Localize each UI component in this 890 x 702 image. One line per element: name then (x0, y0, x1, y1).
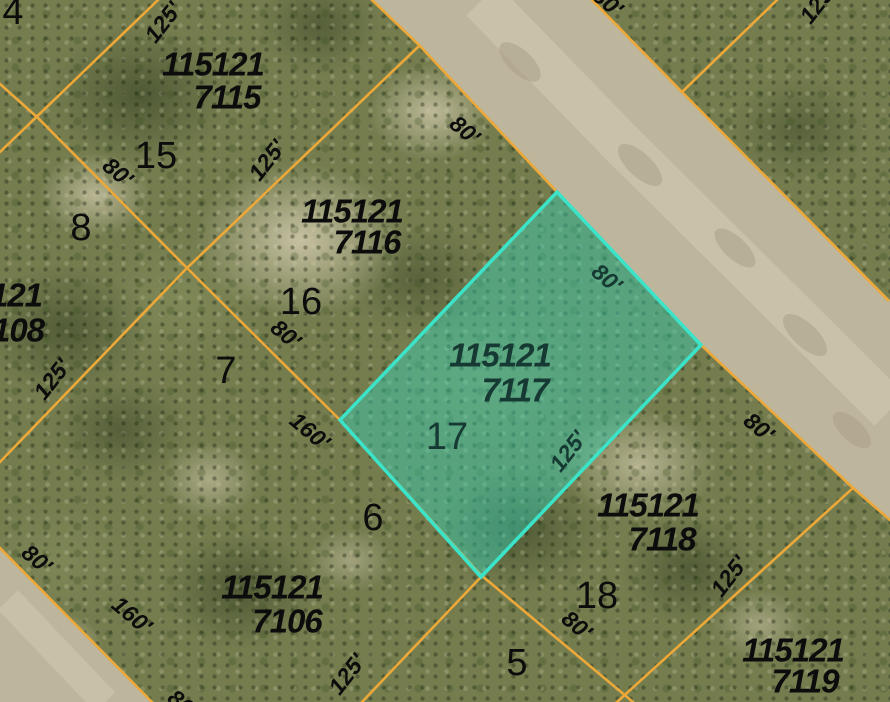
lot-number-label: 17 (426, 416, 468, 458)
dimension-label: 125' (28, 353, 76, 405)
parcel-id-label: 7116 (334, 224, 403, 261)
parcel-id-label: 115121 (162, 46, 264, 83)
lot-number-label: 7 (215, 350, 236, 392)
parcel-id-label: 7117 (482, 372, 552, 409)
dimension-label: 160' (285, 407, 336, 456)
dimension-label: 80' (98, 152, 140, 193)
parcel-id-label: 7119 (772, 663, 841, 700)
parcel-id-label: 115121 (449, 337, 551, 374)
dimension-label: 160' (107, 591, 158, 640)
lot-number-label: 15 (135, 135, 177, 177)
lot-number-label: 18 (576, 575, 618, 617)
plat-overlay: 4 125' 115121 7115 15 80' 125' 8 121 108… (0, 0, 890, 702)
dimension-label: 125' (243, 134, 291, 186)
dimension-label: 80' (445, 110, 487, 151)
lot-number-label: 4 (2, 0, 23, 33)
parcel-map: 4 125' 115121 7115 15 80' 125' 8 121 108… (0, 0, 890, 702)
parcel-id-label: 7115 (194, 79, 263, 116)
dimension-label: 80' (163, 684, 205, 702)
parcel-id-label: 121 (0, 277, 42, 314)
dimension-label: 125' (139, 0, 187, 47)
dimension-label: 125' (705, 550, 753, 602)
parcel-id-label: 115121 (597, 487, 699, 524)
parcel-id-label: 115121 (221, 569, 323, 606)
dimension-label: 125' (323, 648, 371, 700)
parcel-id-label: 108 (0, 312, 46, 349)
lot-number-label: 5 (506, 642, 527, 684)
dimension-label: 125' (794, 0, 842, 28)
lot-number-label: 8 (70, 207, 91, 249)
lot-number-label: 6 (362, 497, 383, 539)
parcel-id-label: 7106 (252, 603, 323, 640)
parcel-id-label: 7118 (629, 521, 698, 558)
